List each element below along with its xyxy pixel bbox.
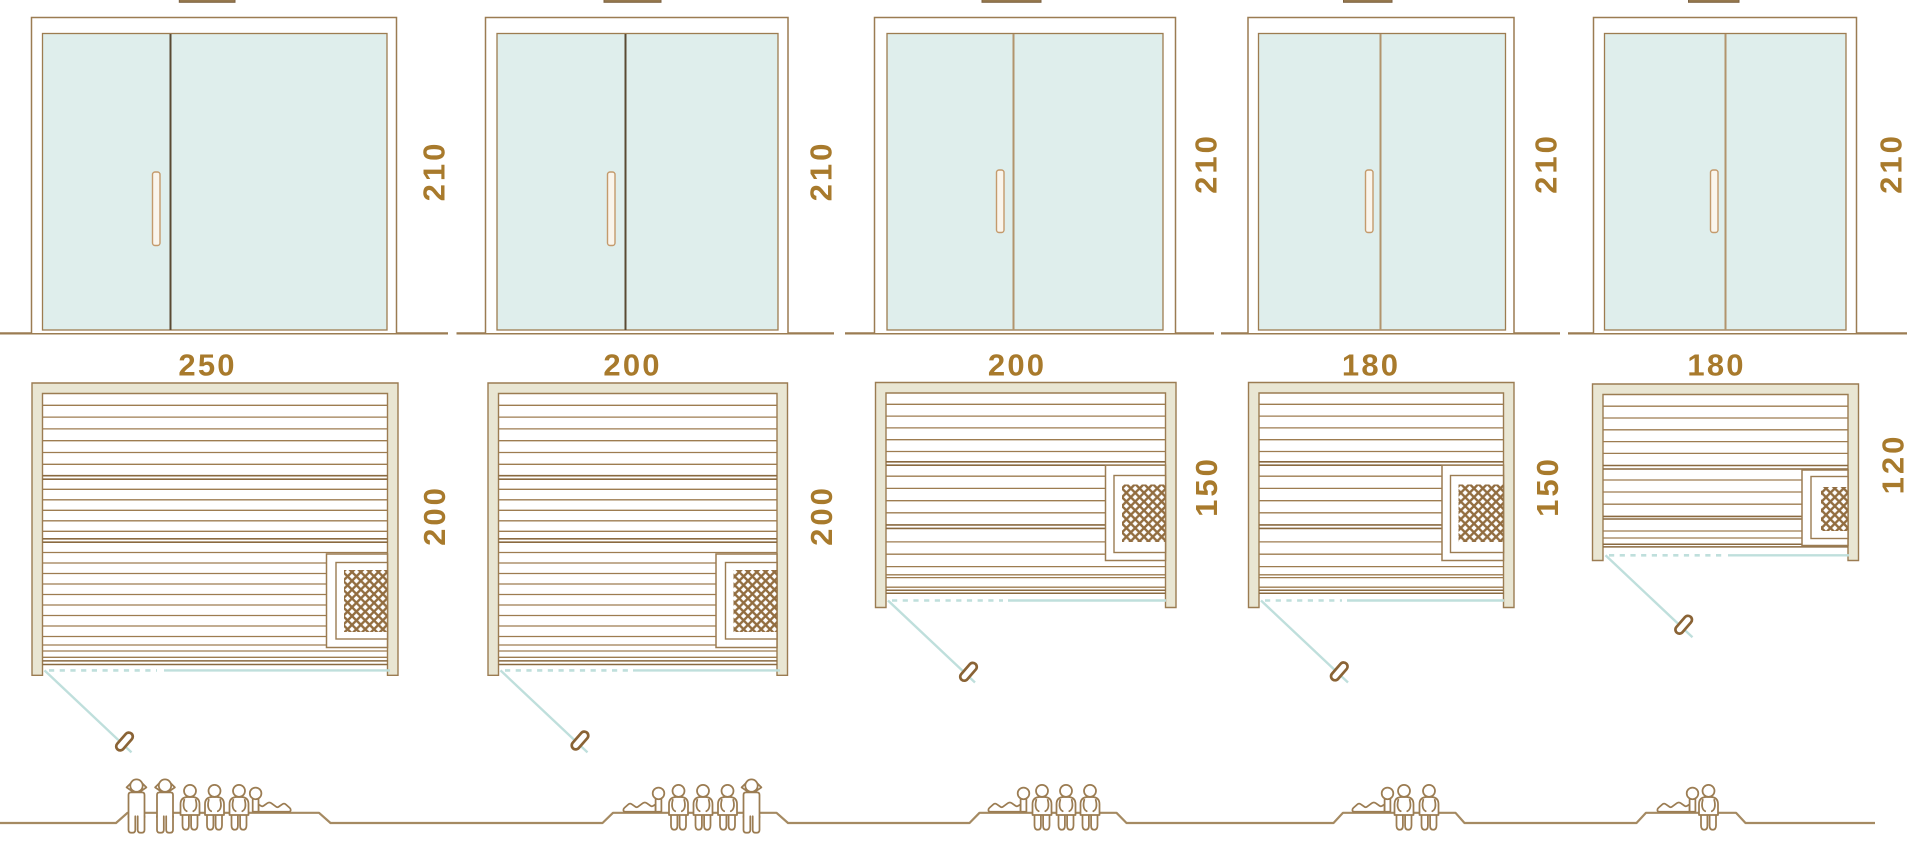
svg-text:250: 250: [178, 348, 236, 383]
svg-text:210: 210: [1529, 133, 1564, 194]
svg-text:210: 210: [1189, 133, 1224, 194]
svg-text:120: 120: [1876, 434, 1911, 495]
svg-text:180: 180: [1342, 348, 1400, 383]
svg-text:210: 210: [417, 141, 452, 202]
svg-text:200: 200: [804, 485, 839, 546]
svg-text:200: 200: [988, 348, 1046, 383]
svg-text:180: 180: [1687, 348, 1745, 383]
svg-text:200: 200: [603, 348, 661, 383]
svg-text:210: 210: [1874, 133, 1909, 194]
svg-text:210: 210: [804, 141, 839, 202]
svg-text:150: 150: [1189, 456, 1224, 517]
svg-text:150: 150: [1530, 456, 1565, 517]
svg-text:200: 200: [417, 485, 452, 546]
